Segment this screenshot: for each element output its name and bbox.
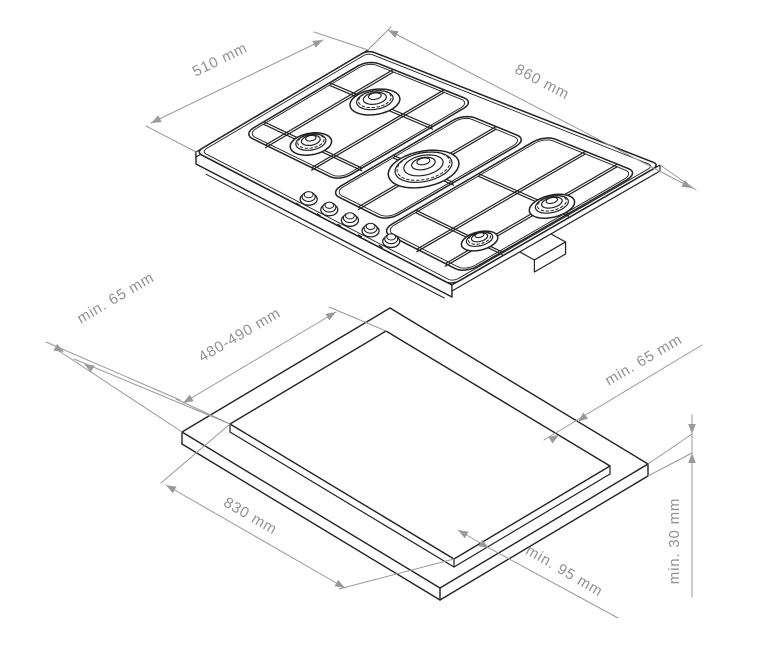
technical-drawing: 510 mm 860 mm min. 65 mm 480-490 mm min.…	[0, 0, 763, 661]
installation-diagram-page: 510 mm 860 mm min. 65 mm 480-490 mm min.…	[0, 0, 763, 661]
cutout-width-dimension-label: 830 mm	[220, 494, 280, 538]
hob-width-dimension-label: 860 mm	[512, 61, 572, 103]
worktop-thickness-dimension-label: min. 30 mm	[666, 498, 683, 584]
worktop-cutout-isometric-view	[182, 308, 648, 600]
cutout-left-clearance-label: min. 65 mm	[74, 269, 157, 327]
cutout-front-clearance-label: min. 95 mm	[523, 542, 606, 600]
cutout-depth-dimension-label: 480-490 mm	[196, 304, 284, 365]
hob-depth-dimension-label: 510 mm	[190, 39, 250, 80]
hob-isometric-view	[196, 50, 660, 298]
